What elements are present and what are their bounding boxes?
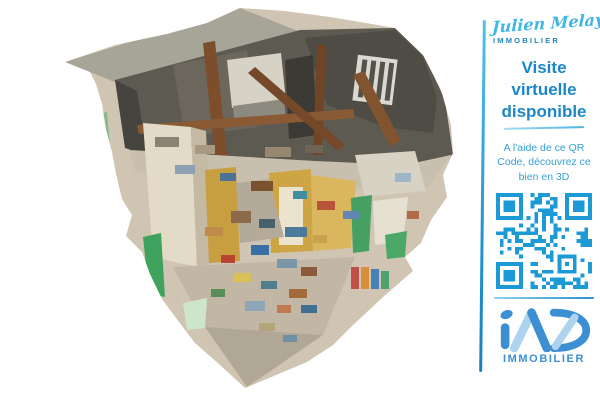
property-3d-scan-image (55, 5, 465, 395)
iad-immobilier-label: IMMOBILIER (490, 353, 598, 365)
iad-letter-a (514, 312, 531, 348)
iad-letter-i (501, 323, 510, 349)
qr-instructions: A l'aide de ce QR Code, découvrez ce bie… (490, 141, 598, 184)
headline-underline (504, 126, 584, 130)
sidebar-content: Julien Melay IMMOBILIER Visite virtuelle… (490, 14, 598, 365)
qr-code (496, 193, 592, 289)
agent-signature: Julien Melay (492, 10, 598, 36)
ochre-walls (205, 167, 356, 263)
iad-logo: IMMOBILIER (490, 304, 598, 365)
virtual-tour-headline: Visite virtuelle disponible (490, 57, 598, 122)
dollhouse-svg (55, 5, 465, 395)
info-sidebar: Julien Melay IMMOBILIER Visite virtuelle… (460, 0, 600, 400)
vertical-accent-line (479, 20, 486, 372)
real-estate-flyer: Julien Melay IMMOBILIER Visite virtuelle… (0, 0, 600, 400)
agent-immobilier-label: IMMOBILIER (493, 36, 598, 45)
divider-line (494, 297, 594, 299)
